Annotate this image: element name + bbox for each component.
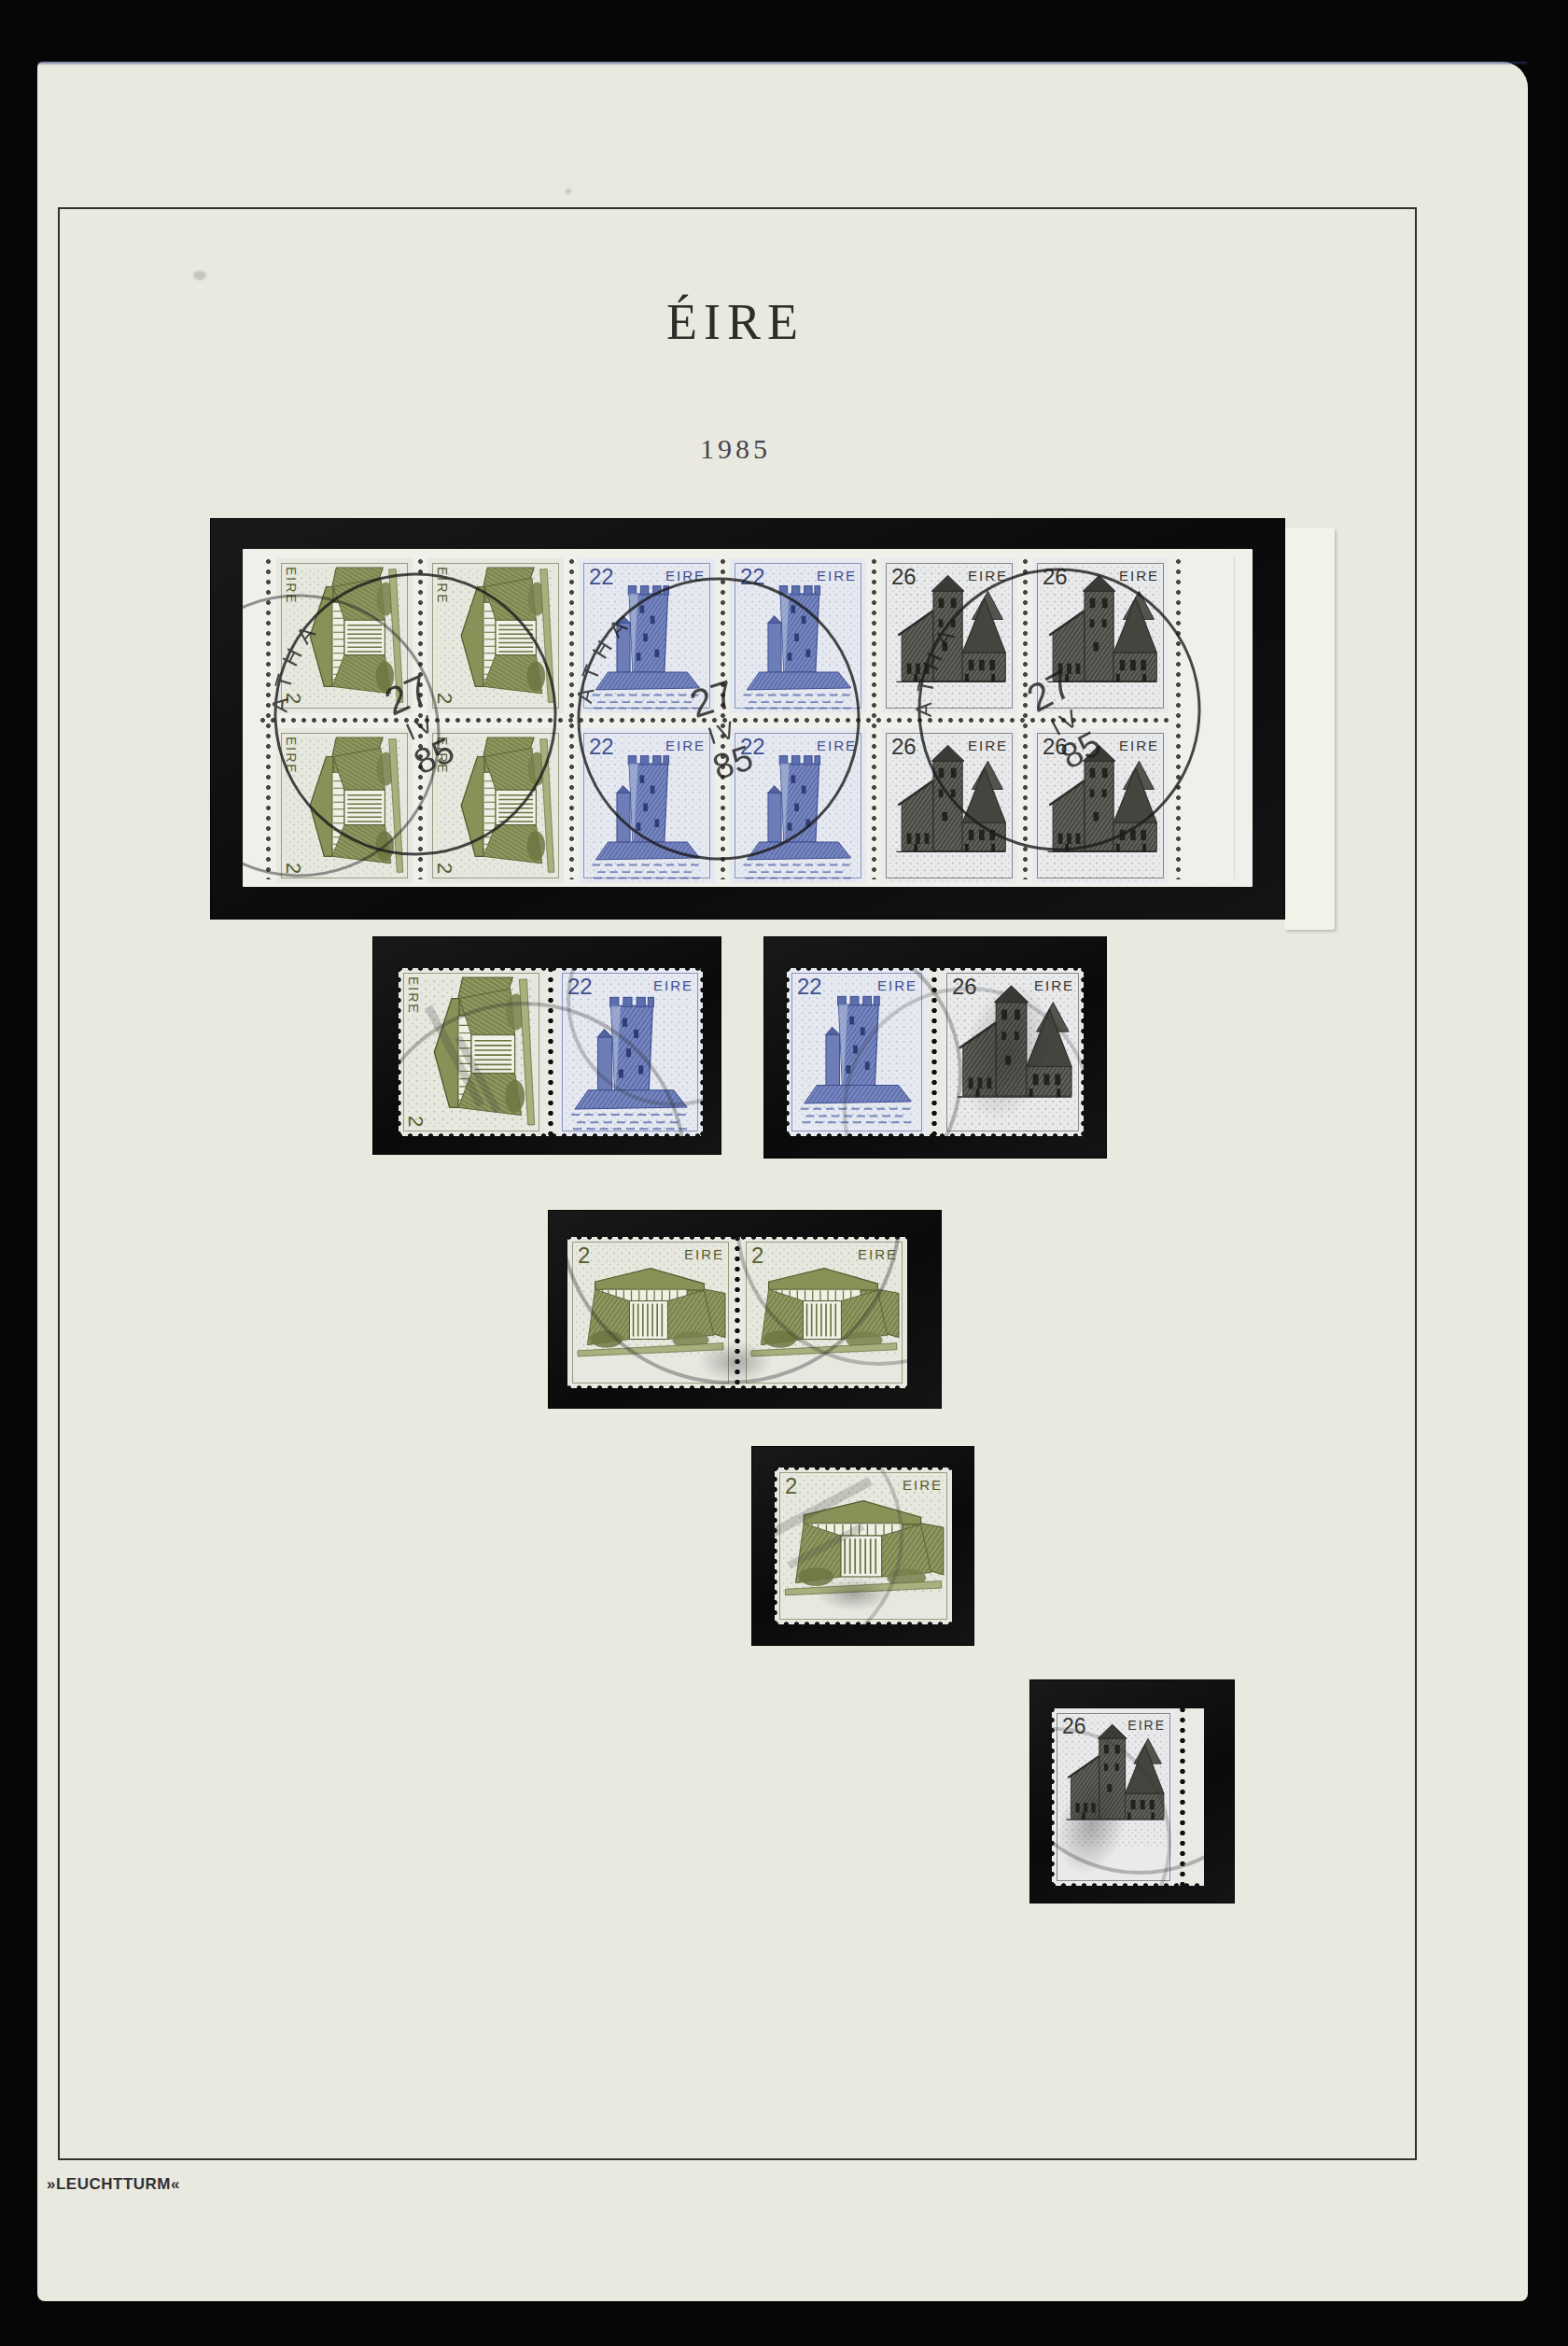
perforation-strip bbox=[399, 968, 402, 1136]
stamp-2p-sideways: EIRE2 bbox=[276, 728, 413, 883]
stamp-2p-sideways: EIRE2 bbox=[427, 558, 564, 713]
year-label: 1985 bbox=[58, 433, 1413, 465]
stamp-2p: 2EIRE bbox=[775, 1468, 952, 1624]
perforation-strip bbox=[258, 717, 1172, 723]
dust-speck bbox=[193, 271, 206, 280]
perforation-strip bbox=[775, 1468, 952, 1471]
perforation-strip bbox=[734, 1237, 741, 1388]
stamp-pair-2p-2p: 2EIRE 2EIRE bbox=[567, 1237, 907, 1388]
stamp-art-2p bbox=[406, 976, 537, 1129]
perforation-strip bbox=[1052, 1708, 1056, 1886]
selvage-crease bbox=[1234, 556, 1235, 879]
perforation-strip bbox=[787, 968, 791, 1136]
perforation-strip bbox=[1052, 1882, 1204, 1886]
stamp-22p: 22EIRE bbox=[557, 968, 703, 1136]
perforation-strip bbox=[399, 968, 703, 972]
perforation-strip bbox=[567, 1384, 907, 1388]
pair-mount-22p-26p: 22EIRE 26EIRE bbox=[764, 937, 1106, 1158]
perforation-strip bbox=[787, 968, 1084, 972]
stamp-26p: 26 EIRE bbox=[1052, 1708, 1175, 1886]
booklet-pane: EIRE2 EIRE2 22EIRE 22EIRE 26EIRE 26EIRE bbox=[243, 549, 1253, 887]
single-mount-26p: 26 EIRE bbox=[1030, 1680, 1234, 1903]
stamp-26p: 26EIRE bbox=[1032, 558, 1169, 713]
perforation-strip bbox=[567, 1237, 907, 1241]
stamp-pair-22p-26p: 22EIRE 26EIRE bbox=[787, 968, 1084, 1136]
stamp-art-2p bbox=[284, 736, 405, 876]
perforation-strip bbox=[699, 968, 703, 1136]
stamp-2p: 2EIRE bbox=[567, 1237, 734, 1388]
stamp-22p: 22EIRE bbox=[579, 558, 715, 713]
stamp-art-2p bbox=[284, 566, 405, 706]
perforation-strip bbox=[547, 968, 554, 1136]
page-title: ÉIRE bbox=[58, 293, 1413, 351]
stamp-26p: 26EIRE bbox=[942, 968, 1084, 1136]
stamp-26p: 26EIRE bbox=[881, 558, 1017, 713]
mount-backing-card bbox=[1284, 528, 1335, 930]
perforation-strip bbox=[1179, 1708, 1186, 1886]
stamp-art-2p bbox=[435, 566, 556, 706]
booklet-pane-mount: EIRE2 EIRE2 22EIRE 22EIRE 26EIRE 26EIRE bbox=[211, 519, 1284, 919]
perforation-strip bbox=[775, 1468, 778, 1624]
stamp-22p: 22EIRE bbox=[730, 728, 866, 883]
perforation-strip bbox=[1080, 968, 1084, 1136]
perforation-strip bbox=[775, 1621, 952, 1624]
stamp-22p: 22EIRE bbox=[787, 968, 927, 1136]
stamp-26p: 26EIRE bbox=[881, 728, 1017, 883]
perforation-strip bbox=[1175, 556, 1182, 879]
stamp-2p: 2EIRE bbox=[741, 1237, 907, 1388]
pair-mount-2p-22p: EIRE2 22EIRE bbox=[373, 937, 721, 1154]
perforation-strip bbox=[787, 1132, 1084, 1136]
stamp-2p-sideways: EIRE2 bbox=[399, 968, 544, 1136]
stamp-single-26p: 26 EIRE bbox=[1052, 1708, 1204, 1886]
stamp-26p: 26EIRE bbox=[1032, 728, 1169, 883]
stamp-art-2p bbox=[435, 736, 556, 876]
stamp-single-2p: 2EIRE bbox=[775, 1468, 952, 1624]
brand-label: »LEUCHTTURM« bbox=[47, 2175, 180, 2194]
stamp-2p-sideways: EIRE2 bbox=[276, 558, 413, 713]
stamp-22p: 22EIRE bbox=[579, 728, 715, 883]
coil-pair-mount-2p: 2EIRE 2EIRE bbox=[549, 1211, 941, 1408]
single-mount-2p: 2EIRE bbox=[752, 1447, 973, 1645]
scanned-album-page: ÉIRE 1985 EIRE2 bbox=[0, 0, 1568, 2346]
stamp-22p: 22EIRE bbox=[730, 558, 866, 713]
perforation-strip bbox=[399, 1132, 703, 1136]
dust-speck bbox=[566, 189, 571, 194]
stamp-pair-2p-22p: EIRE2 22EIRE bbox=[399, 968, 703, 1136]
perforation-strip bbox=[931, 968, 938, 1136]
album-page-paper: ÉIRE 1985 EIRE2 bbox=[37, 62, 1528, 2301]
stamp-2p-sideways: EIRE2 bbox=[427, 728, 564, 883]
